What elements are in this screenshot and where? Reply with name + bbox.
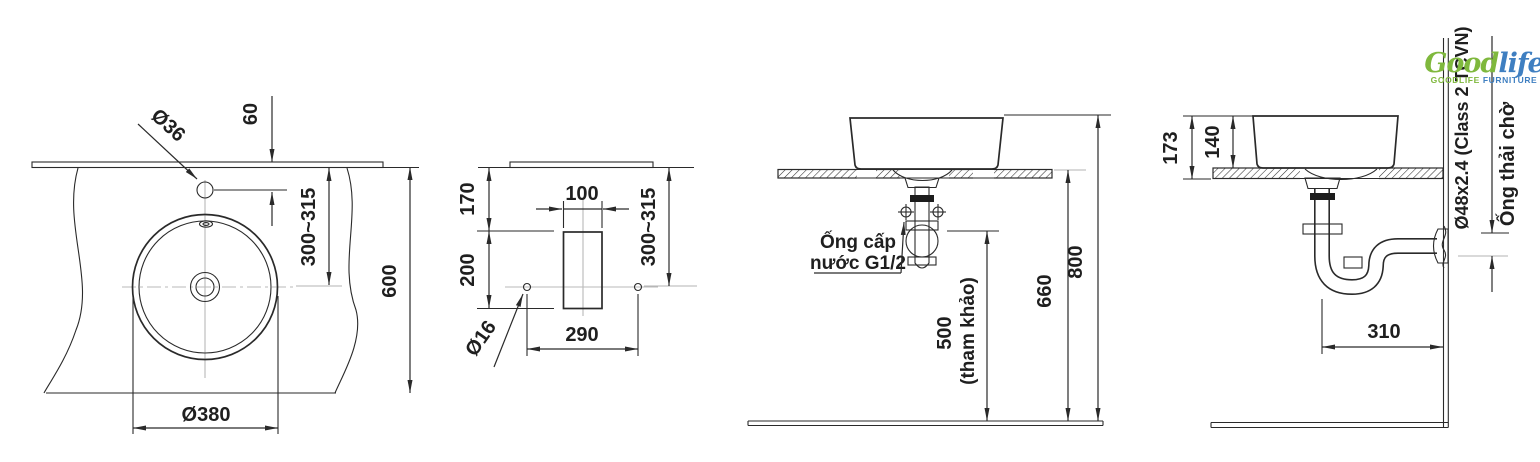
dim-cutout-to-holes: 200 bbox=[457, 231, 489, 308]
supply-label-line1: Ống cấp bbox=[820, 231, 896, 253]
seal-ring bbox=[1310, 193, 1335, 200]
dim-label: Ø36 bbox=[147, 105, 190, 147]
dim-label: 660 bbox=[1034, 274, 1056, 307]
dim-supply-height: 500 (tham khảo) bbox=[934, 231, 999, 421]
dim-label: Ø380 bbox=[182, 404, 231, 426]
trap-nut-lower bbox=[1344, 257, 1362, 268]
dim-edge-to-faucet: 60 bbox=[240, 96, 272, 226]
floor bbox=[748, 421, 1103, 426]
dim-label: 600 bbox=[379, 264, 401, 297]
drain-assembly bbox=[905, 178, 939, 268]
plan-view: Ø380 600 300~315 60 Ø36 bbox=[32, 96, 419, 434]
sink-installation-drawing: Ø380 600 300~315 60 Ø36 bbox=[0, 0, 1540, 462]
side-view: 173 140 310 Ø48x2.4 (Class 2 TCVN) Ống t… bbox=[1160, 26, 1519, 427]
p-trap bbox=[1303, 178, 1448, 287]
dim-label: 60 bbox=[240, 103, 262, 125]
dim-edge-to-cutout: 170 bbox=[457, 168, 489, 231]
dim-note: (tham khảo) bbox=[958, 277, 979, 385]
dim-label: 200 bbox=[457, 253, 479, 286]
dim-label: 170 bbox=[457, 182, 479, 215]
break-line-right bbox=[335, 168, 358, 393]
dim-label: Ø16 bbox=[461, 317, 501, 361]
trap-nut-lower bbox=[908, 257, 936, 265]
front-view: Ống cấp nước G1/2 500 (tham khảo) 660 80… bbox=[748, 115, 1111, 426]
counter-edge bbox=[32, 162, 383, 168]
break-line-left bbox=[44, 168, 83, 393]
waste-pipe-label: Ống thải chờ bbox=[1495, 101, 1519, 226]
leader-fixing-hole: Ø16 bbox=[461, 294, 523, 367]
dim-trap-to-wall: 310 bbox=[1322, 299, 1443, 354]
technical-drawing-page: Ø380 600 300~315 60 Ø36 bbox=[0, 0, 1540, 462]
dim-label: 173 bbox=[1160, 131, 1182, 164]
dim-label: 300~315 bbox=[638, 188, 660, 266]
supply-label-line2: nước G1/2 bbox=[810, 253, 906, 274]
dim-label: 100 bbox=[565, 183, 598, 205]
cutout-view: 170 200 100 290 300~315 bbox=[457, 162, 697, 367]
dim-label: 290 bbox=[565, 324, 598, 346]
basin bbox=[850, 118, 1003, 169]
dim-label: 800 bbox=[1065, 245, 1087, 278]
seal-ring bbox=[910, 195, 934, 202]
dim-label: 300~315 bbox=[298, 188, 320, 266]
dim-label: 500 bbox=[934, 316, 956, 349]
dim-basin-height: 140 bbox=[1202, 116, 1233, 168]
overflow-hole bbox=[200, 221, 213, 227]
supply-point-right bbox=[930, 204, 946, 220]
basin bbox=[1253, 116, 1398, 168]
dim-label: 310 bbox=[1367, 321, 1400, 343]
supply-pipe-label: Ống cấp nước G1/2 bbox=[810, 222, 906, 274]
dim-counter-height: 660 bbox=[1034, 170, 1086, 421]
counter-edge bbox=[510, 162, 653, 168]
brand-tagline: GOODLIFE FURNITURE bbox=[1431, 75, 1538, 85]
floor bbox=[1211, 423, 1448, 428]
dim-label: 140 bbox=[1202, 125, 1224, 158]
dim-counter-depth: 600 bbox=[379, 167, 410, 393]
brand-logo: Goodlife GOODLIFE FURNITURE bbox=[1424, 48, 1540, 85]
dim-edge-to-center: 300~315 bbox=[298, 168, 329, 285]
dim-rim-height: 800 bbox=[1004, 115, 1111, 421]
supply-point-left bbox=[898, 204, 914, 220]
dim-edge-to-holes: 300~315 bbox=[638, 168, 669, 286]
